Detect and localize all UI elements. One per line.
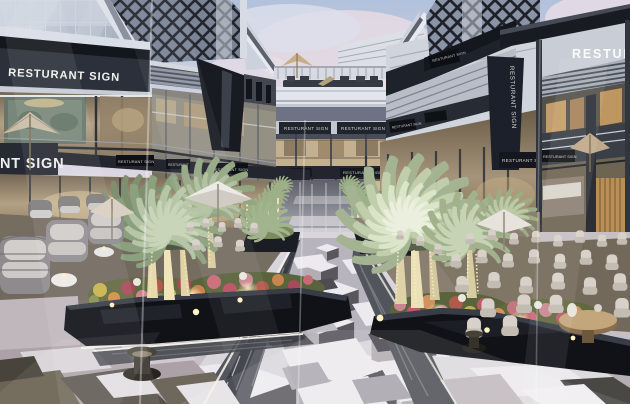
svg-text:RESTURANT SIGN: RESTURANT SIGN	[341, 126, 385, 131]
svg-text:RESTURANT SIGN: RESTURANT SIGN	[343, 170, 382, 175]
svg-text:RESTURANT SIGN: RESTURANT SIGN	[118, 160, 154, 164]
svg-text:RESTURANT SIGN: RESTURANT SIGN	[284, 126, 328, 131]
